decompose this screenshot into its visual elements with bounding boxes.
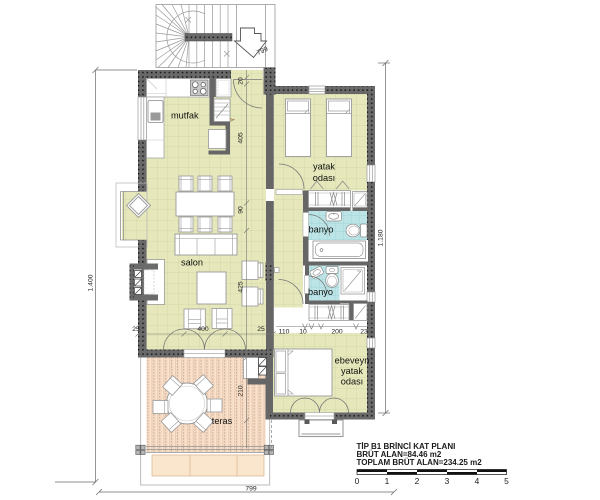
- svg-text:1.400: 1.400: [88, 274, 95, 291]
- svg-text:405: 405: [238, 132, 245, 144]
- svg-text:odası: odası: [313, 173, 335, 183]
- svg-text:400: 400: [197, 326, 209, 333]
- svg-text:110: 110: [279, 329, 290, 336]
- svg-text:4: 4: [475, 476, 480, 486]
- svg-text:yatak: yatak: [341, 366, 363, 376]
- svg-text:425: 425: [238, 281, 245, 293]
- svg-text:200: 200: [331, 329, 343, 336]
- svg-text:25: 25: [257, 326, 265, 333]
- svg-text:210: 210: [238, 385, 245, 397]
- svg-text:2: 2: [415, 476, 420, 486]
- svg-text:1.180: 1.180: [378, 229, 385, 246]
- svg-text:banyo: banyo: [308, 225, 333, 235]
- svg-text:5: 5: [504, 476, 509, 486]
- svg-text:banyo: banyo: [308, 287, 333, 297]
- svg-text:yatak: yatak: [313, 162, 335, 172]
- svg-text:20: 20: [238, 77, 245, 85]
- svg-text:0: 0: [355, 476, 360, 486]
- svg-text:23: 23: [360, 329, 368, 336]
- svg-text:TOPLAM BRÜT ALAN=234.25 m2: TOPLAM BRÜT ALAN=234.25 m2: [357, 458, 483, 467]
- svg-text:90: 90: [238, 206, 245, 214]
- svg-text:ebeveyn: ebeveyn: [335, 356, 370, 366]
- svg-text:25: 25: [132, 326, 140, 333]
- svg-text:odası: odası: [341, 377, 363, 387]
- svg-text:mutfak: mutfak: [171, 111, 199, 121]
- svg-text:teras: teras: [212, 416, 233, 426]
- svg-text:3: 3: [445, 476, 450, 486]
- svg-text:10: 10: [299, 329, 307, 336]
- svg-text:salon: salon: [181, 258, 203, 268]
- svg-text:1: 1: [385, 476, 390, 486]
- svg-text:799: 799: [245, 486, 257, 493]
